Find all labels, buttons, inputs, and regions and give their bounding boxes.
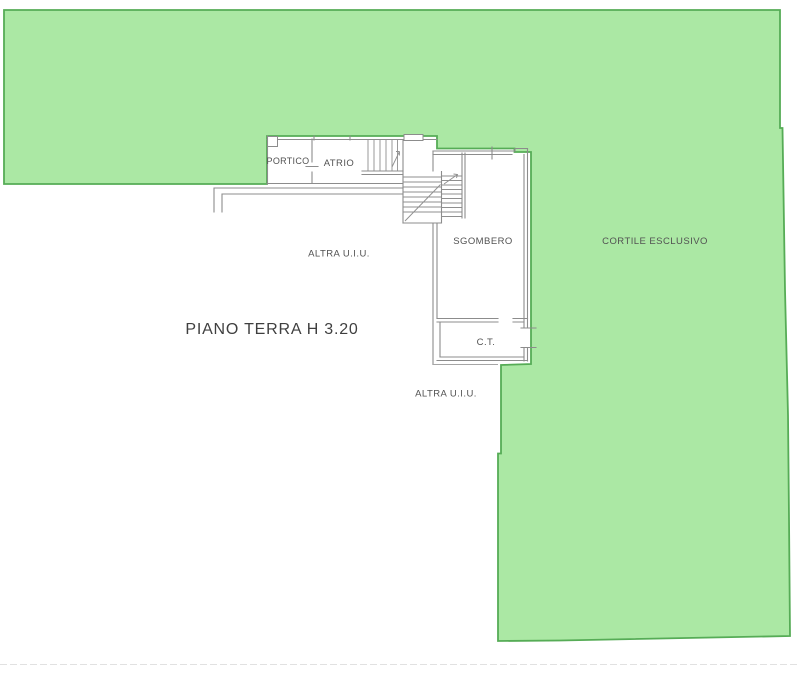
ct-bottom-wall [437,357,528,361]
atrio-pillar [404,135,423,141]
block-left-wall [433,151,440,365]
portico-pillar [268,137,278,147]
sgombero-label: SGOMBERO [453,236,513,247]
stair-landing-wall [362,171,403,175]
portico-label: PORTICO [267,156,310,166]
stair-diagonal [405,185,441,222]
stair-flight-middle [403,177,442,212]
floor-title: PIANO TERRA H 3.20 [185,321,358,338]
atrio-label: ATRIO [324,158,355,169]
ct-label: C.T. [477,337,496,348]
sgombero-ct-divider [437,319,528,323]
cortile-esclusivo-label: CORTILE ESCLUSIVO [602,236,708,247]
floor-plan-drawing: PORTICO ATRIO ALTRA U.I.U. SGOMBERO C.T.… [0,0,800,676]
stair-right-wall [462,153,465,218]
staircase [362,140,465,223]
altra-uiu-walls [214,188,403,212]
floor-plan-canvas: PORTICO ATRIO ALTRA U.I.U. SGOMBERO C.T.… [0,0,800,676]
courtyard-area [4,10,790,641]
stair-arrow-upper [392,152,400,168]
altra-uiu-lower-label: ALTRA U.I.U. [415,389,477,400]
courtyard-polygon [4,10,790,641]
stair-flight-right [442,176,463,217]
altra-uiu-upper-label: ALTRA U.I.U. [308,249,370,260]
stair-arrow-right [444,174,458,184]
stair-flight-upper [368,140,398,171]
